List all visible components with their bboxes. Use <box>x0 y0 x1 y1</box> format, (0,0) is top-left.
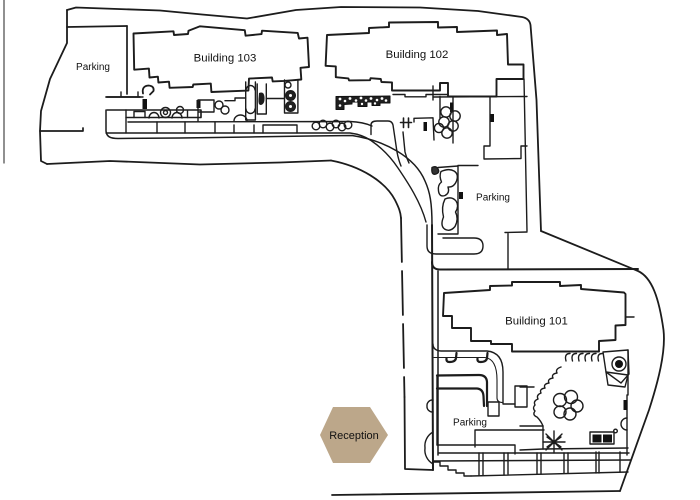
svg-text:Parking: Parking <box>453 418 487 429</box>
svg-text:Reception: Reception <box>329 430 379 442</box>
svg-text:Building 101: Building 101 <box>505 316 568 328</box>
svg-text:Building 102: Building 102 <box>386 49 449 61</box>
svg-text:Parking: Parking <box>76 62 110 73</box>
svg-text:Parking: Parking <box>476 193 510 204</box>
svg-text:Building 103: Building 103 <box>194 53 257 65</box>
